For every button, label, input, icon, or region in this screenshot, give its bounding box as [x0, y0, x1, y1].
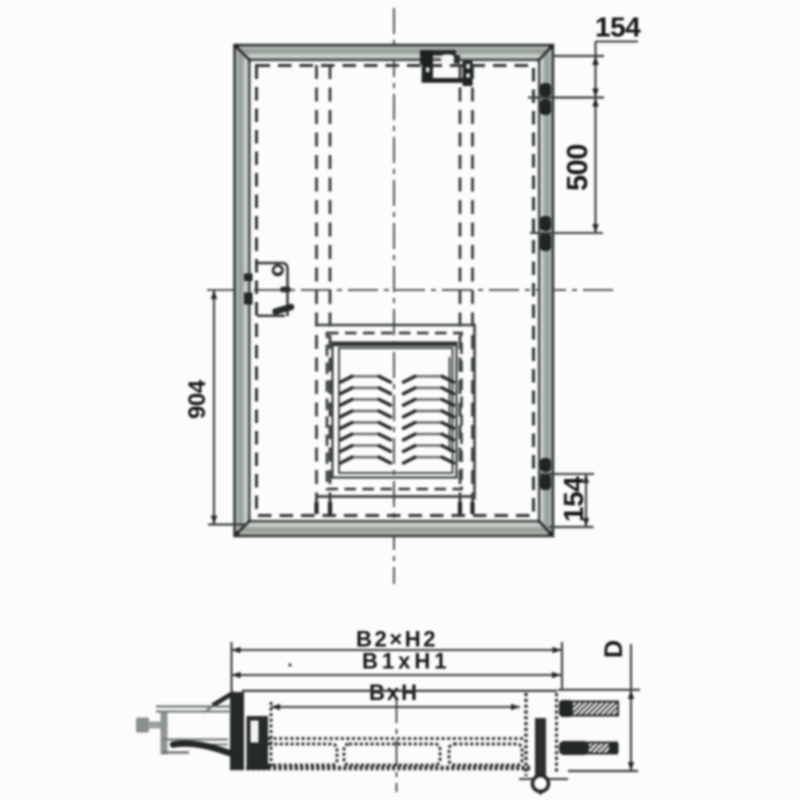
svg-text:D: D — [600, 640, 628, 658]
svg-text:154: 154 — [558, 476, 589, 522]
svg-text:BxH: BxH — [369, 680, 419, 705]
svg-text:904: 904 — [184, 379, 211, 419]
svg-text:B1xH1: B1xH1 — [362, 649, 450, 674]
svg-text:154: 154 — [595, 12, 641, 43]
svg-text:500: 500 — [562, 144, 594, 191]
